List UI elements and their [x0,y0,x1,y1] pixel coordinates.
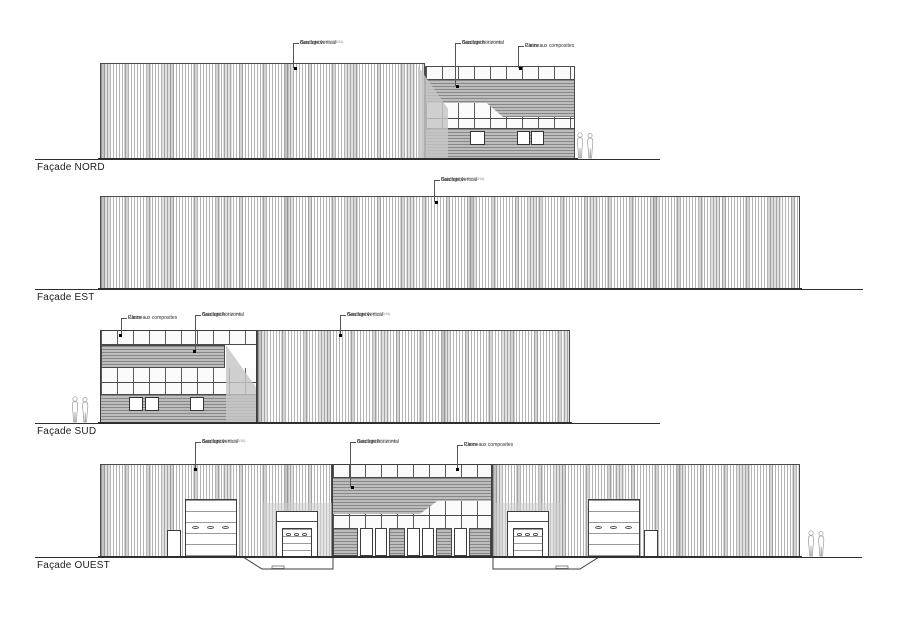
ouest-glazed-door [375,528,387,556]
sud-ground-line-building [98,422,572,424]
sud-window-3 [190,397,204,411]
dock-lintel-joint [277,521,317,522]
elevation-sheet: Façade NORD Bardage vertical Gris foncé … [0,0,916,641]
ouest-central-panel-joint [333,515,491,516]
nord-window-3 [531,131,544,145]
sud-window-2 [145,397,159,411]
facade-nord: Façade NORD Bardage vertical Gris foncé … [0,0,916,180]
nord-annex-composite-panels [426,67,574,80]
ouest-glazed-door [422,528,434,556]
leader-line [195,315,201,351]
ouest-central-pier [389,528,405,556]
ouest-central-composite-panels [333,465,491,478]
leader-dot [519,67,522,70]
leader-line [195,442,201,469]
leader-line [457,445,463,469]
leader-dot [119,334,122,337]
ouest-glazed-door [407,528,420,556]
door-window-oval [625,526,632,529]
leader-dot [194,468,197,471]
ouest-central-pier [469,528,491,556]
door-window-oval [207,526,214,529]
dock-lintel-joint [508,521,548,522]
nord-window-2 [517,131,530,145]
leader-dot [456,468,459,471]
leader-line [121,318,127,335]
ouest-central-pier [333,528,358,556]
leader-dot [456,85,459,88]
est-wall-vertical-cladding [100,196,800,289]
ouest-small-door-a [167,530,181,557]
leader-line [350,442,356,487]
leader-line [293,43,299,68]
door-window-oval [595,526,602,529]
sud-annex-horizontal-cladding [101,345,225,368]
door-window-oval [525,533,530,536]
ouest-dock-a-niche [276,511,318,557]
leader-dot [351,486,354,489]
ouest-ground-line-building [98,556,802,558]
nord-annex-panel-joint [426,118,574,119]
leader-dot [294,67,297,70]
facade-est: Façade EST Bardage vertical Gris foncé (… [0,170,916,310]
nord-main-wall-vertical-cladding [100,63,425,159]
leader-dot [435,201,438,204]
door-window-oval [222,526,229,529]
nord-annex-base-cladding [426,128,574,158]
door-window-oval [286,533,291,536]
ouest-sectional-door-b [588,499,640,557]
facade-ouest: Façade OUEST Bardage vertical Gris foncé… [0,435,916,641]
sud-main-wall-vertical-cladding [257,330,570,423]
ouest-small-door-b [644,530,658,557]
door-window-oval [517,533,522,536]
ouest-dock-a-door [282,528,312,557]
leader-line [455,43,461,86]
ouest-glazed-door [360,528,373,556]
door-window-oval [610,526,617,529]
ouest-dock-b-pit [490,557,605,573]
leader-line [340,315,346,335]
leader-line [434,180,440,202]
ouest-central-section [332,464,492,557]
scale-figures-sud [70,396,92,423]
door-window-oval [192,526,199,529]
door-window-oval [294,533,299,536]
nord-window-1 [470,131,485,145]
sud-corner-shading [226,345,256,422]
ouest-central-pier [436,528,452,556]
scale-figures-nord [575,132,597,159]
leader-line [518,46,524,68]
est-ground-line-building [98,288,802,290]
leader-dot [339,334,342,337]
sud-window-1 [129,397,143,411]
nord-ground-line-building [98,158,578,160]
facade-ouest-label: Façade OUEST [37,560,110,571]
door-window-oval [302,533,307,536]
ouest-dock-a-pit [236,557,336,573]
facade-sud: Façade SUD Panneaux composites Clairs Ba… [0,300,916,445]
ouest-dock-b-niche [507,511,549,557]
sud-annex [100,330,257,423]
door-window-oval [533,533,538,536]
ouest-glazed-door [454,528,467,556]
ouest-dock-b-door [513,528,543,557]
leader-dot [193,350,196,353]
ouest-sectional-door-a [185,499,237,557]
scale-figures-ouest [806,530,828,557]
